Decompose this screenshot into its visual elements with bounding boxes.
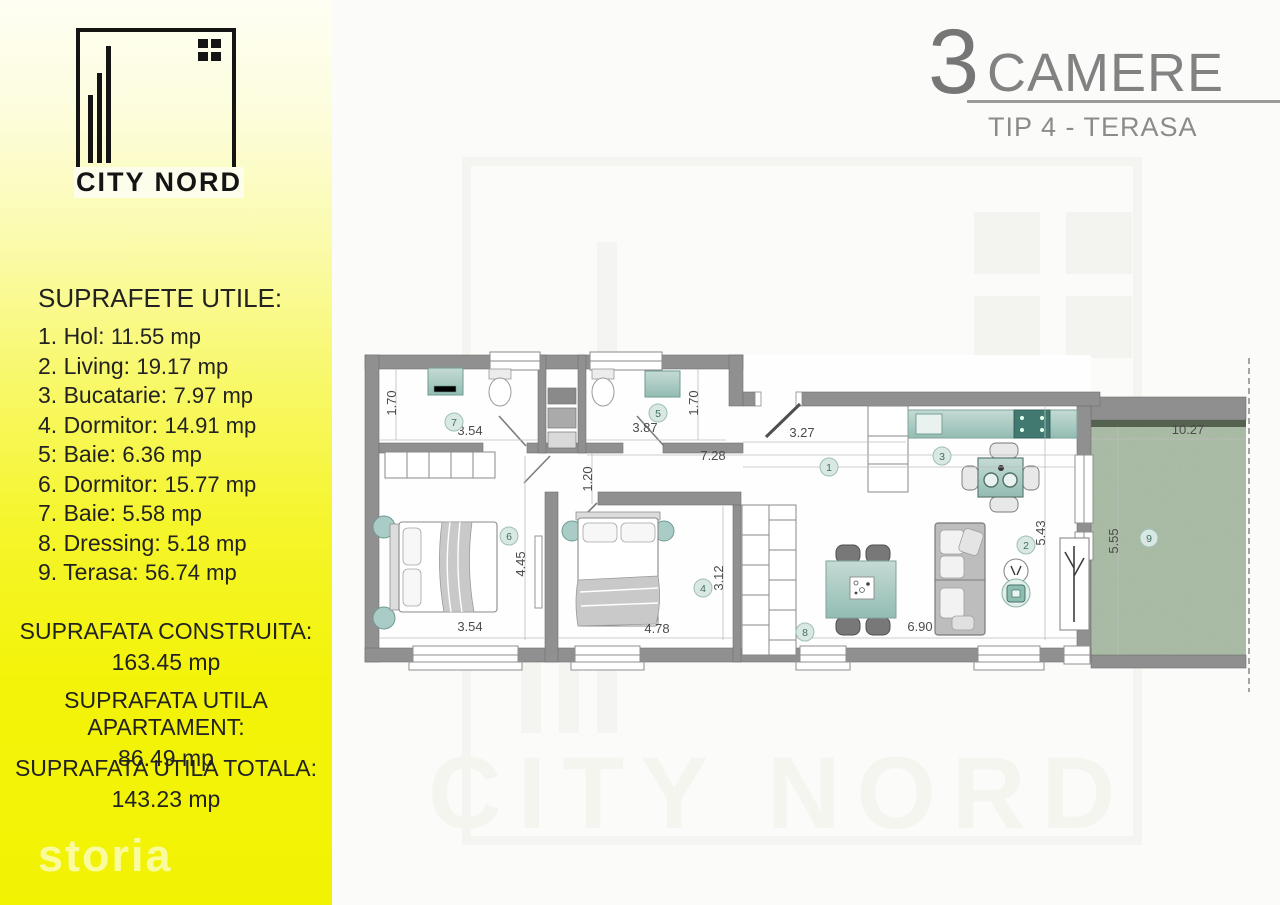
room-area-value: 5.18 mp: [167, 531, 247, 556]
dimension-label: 3.27: [789, 425, 814, 440]
chair: [866, 545, 890, 563]
room-marker: 6: [500, 527, 518, 545]
chair: [836, 617, 860, 635]
room-marker: 1: [820, 458, 838, 476]
room-marker-number: 3: [939, 451, 945, 463]
hall-cabinet: [868, 406, 908, 492]
toilet: [592, 378, 614, 406]
room-area-value: 14.91 mp: [165, 413, 257, 438]
room-marker-number: 9: [1146, 533, 1152, 545]
logo-window-icon: [198, 52, 208, 61]
total-label: SUPRAFATA CONSTRUITA:: [14, 618, 318, 645]
area-list-item: 2. Living: 19.17 mp: [38, 352, 256, 382]
room-area-value: 11.55 mp: [111, 324, 201, 349]
dressing-shelves: [742, 505, 796, 655]
dimension-label: 3.54: [457, 619, 482, 634]
dimension-label: 6.90: [907, 619, 932, 634]
chair: [990, 497, 1018, 512]
area-list-item: 3. Bucatarie: 7.97 mp: [38, 381, 256, 411]
chair: [866, 617, 890, 635]
area-list-item: 6. Dormitor: 15.77 mp: [38, 470, 256, 500]
room-label: 1. Hol:: [38, 323, 104, 349]
dimension-label: 1.70: [686, 390, 701, 415]
room-marker-number: 2: [1023, 540, 1029, 552]
total-label: SUPRAFATA UTILA TOTALA:: [14, 755, 318, 782]
logo-window-icon: [211, 52, 221, 61]
city-nord-logo: CITY NORD: [76, 28, 236, 190]
area-list-item: 4. Dormitor: 14.91 mp: [38, 411, 256, 441]
room-marker-number: 8: [802, 627, 808, 639]
room-label: 7. Baie:: [38, 500, 116, 526]
area-list-item: 1. Hol: 11.55 mp: [38, 322, 256, 352]
chair: [836, 545, 860, 563]
rooms-label: CAMERE: [987, 42, 1224, 104]
dimension-label: 5.43: [1033, 520, 1048, 545]
kitchen-sink: [916, 414, 942, 434]
logo-building-bar: [106, 46, 111, 163]
room-marker: 8: [796, 623, 814, 641]
room-label: 5: Baie:: [38, 441, 116, 467]
chair: [1023, 466, 1039, 490]
watermark-logo-window: [974, 212, 1040, 274]
area-list-item: 5: Baie: 6.36 mp: [38, 440, 256, 470]
room-marker-number: 5: [655, 408, 661, 420]
areas-list: 1. Hol: 11.55 mp2. Living: 19.17 mp3. Bu…: [38, 322, 256, 588]
area-list-item: 9. Terasa: 56.74 mp: [38, 558, 256, 588]
sink-vanity: [645, 371, 680, 397]
room-label: 8. Dressing:: [38, 530, 161, 556]
dimension-label: 4.78: [644, 621, 669, 636]
toilet: [489, 378, 511, 406]
kitchen-counter: [908, 410, 1077, 438]
dimension-label: 1.20: [580, 466, 595, 491]
shaft: [548, 388, 576, 448]
room-marker: 7: [445, 413, 463, 431]
room-area-value: 7.97 mp: [174, 383, 254, 408]
room-label: 4. Dormitor:: [38, 412, 158, 438]
armchair-set: [1002, 559, 1030, 607]
total-useful-total: SUPRAFATA UTILA TOTALA: 143.23 mp: [14, 755, 318, 813]
floorplan-sheet: CITY NORD CITY NORD SUPRAFETE UTILE: 1. …: [0, 0, 1280, 905]
dresser: [535, 536, 542, 608]
title-underline: [967, 100, 1280, 103]
room-marker: 3: [933, 447, 951, 465]
floor-plan: 1.703.543.871.707.283.271.204.453.544.78…: [350, 340, 1270, 710]
terrace: [1091, 358, 1249, 692]
watermark-logo-window: [1066, 212, 1132, 274]
room-area-value: 15.77 mp: [165, 472, 257, 497]
sofa: [935, 523, 985, 635]
plan-type-subtitle: TIP 4 - TERASA: [988, 112, 1198, 143]
dimension-label: 5.55: [1106, 528, 1121, 553]
logo-building-bar: [88, 95, 93, 163]
total-label: SUPRAFATA UTILA APARTAMENT:: [14, 687, 318, 741]
total-value: 143.23 mp: [14, 786, 318, 813]
area-list-item: 8. Dressing: 5.18 mp: [38, 529, 256, 559]
areas-title: SUPRAFETE UTILE:: [38, 283, 282, 314]
room-label: 2. Living:: [38, 353, 130, 379]
dimension-label: 3.12: [711, 565, 726, 590]
room-marker: 5: [649, 404, 667, 422]
dimension-label: 4.45: [513, 551, 528, 576]
total-value: 163.45 mp: [14, 649, 318, 676]
logo-building-bar: [97, 73, 102, 163]
room-marker-number: 6: [506, 531, 512, 543]
dimension-label: 1.70: [384, 390, 399, 415]
dimension-label: 3.87: [632, 420, 657, 435]
logo-window-icon: [211, 39, 221, 48]
chair: [962, 466, 978, 490]
room-label: 6. Dormitor:: [38, 471, 158, 497]
rooms-count: 3: [928, 18, 979, 106]
room-area-value: 19.17 mp: [136, 354, 228, 379]
area-list-item: 7. Baie: 5.58 mp: [38, 499, 256, 529]
chair: [990, 443, 1018, 458]
logo-window-icon: [198, 39, 208, 48]
bed-bedroom4: [562, 512, 674, 626]
room-area-value: 56.74 mp: [145, 560, 237, 585]
room-area-value: 6.36 mp: [122, 442, 202, 467]
room-marker: 4: [694, 579, 712, 597]
room-area-value: 5.58 mp: [122, 501, 202, 526]
wardrobe: [385, 452, 495, 478]
sidebar: CITY NORD SUPRAFETE UTILE: 1. Hol: 11.55…: [0, 0, 332, 905]
room-label: 9. Terasa:: [38, 559, 139, 585]
dimension-label: 7.28: [700, 448, 725, 463]
dimension-label: 10.27: [1172, 422, 1205, 437]
room-marker-number: 4: [700, 583, 706, 595]
room-label: 3. Bucatarie:: [38, 382, 167, 408]
watermark-text: CITY NORD: [428, 735, 1131, 852]
storia-logo: storia: [38, 830, 173, 882]
room-marker: 9: [1140, 529, 1158, 547]
room-marker-number: 1: [826, 462, 832, 474]
room-marker-number: 7: [451, 417, 457, 429]
tv-bench: [1060, 538, 1089, 630]
logo-text: CITY NORD: [74, 167, 244, 198]
room-marker: 2: [1017, 536, 1035, 554]
total-constructed: SUPRAFATA CONSTRUITA: 163.45 mp: [14, 618, 318, 676]
